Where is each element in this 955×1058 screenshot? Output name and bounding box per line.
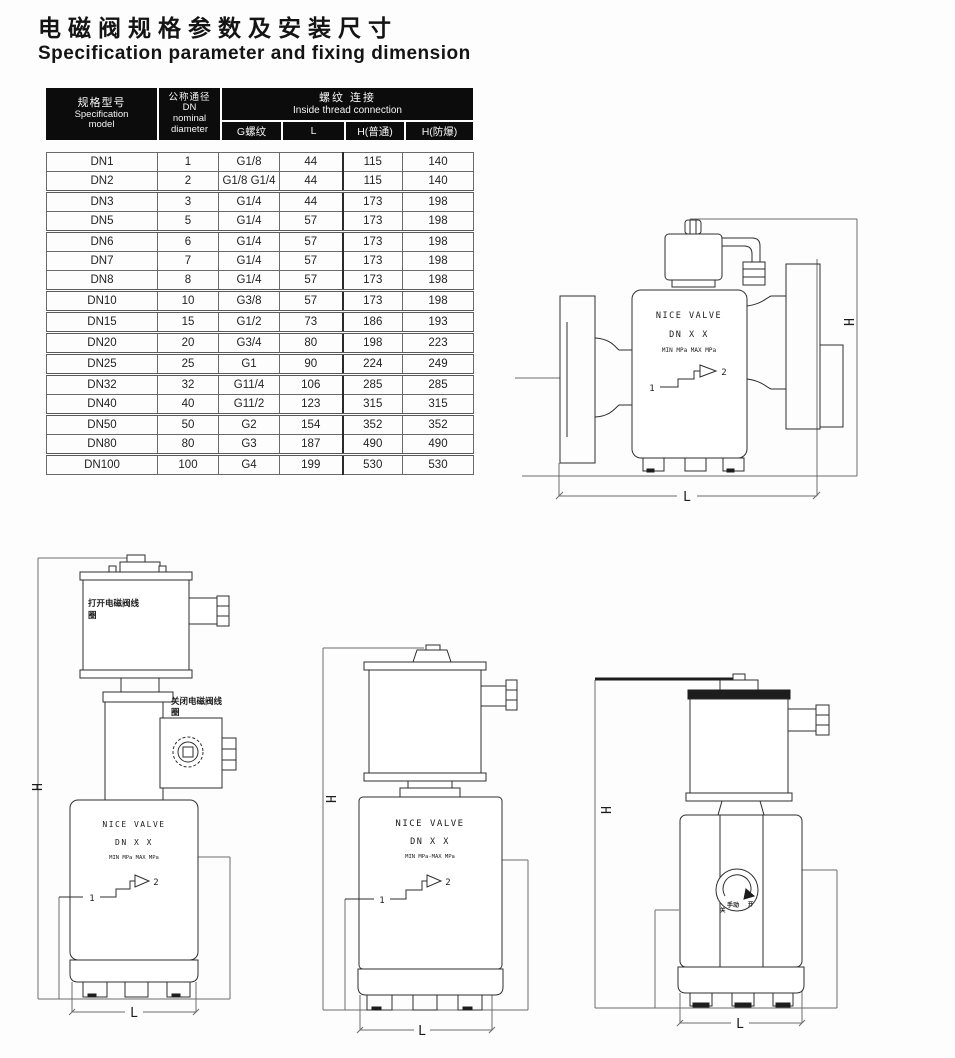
table-row: DN50 50 G2 154 352 352 (47, 415, 474, 435)
table-row: DN5 5 G1/4 57 173 198 (47, 212, 474, 232)
cell-g-thread: G3/4 (219, 333, 280, 354)
cell-h-standard: 115 (343, 153, 403, 172)
header-group-en: Inside thread connection (293, 105, 402, 117)
cell-l: 123 (280, 395, 343, 415)
valve-dn-text: DN X X (410, 837, 450, 847)
dim-h-label: H (322, 795, 337, 803)
cell-l: 44 (280, 153, 343, 172)
cell-h-explosionproof: 490 (403, 435, 474, 455)
cell-model: DN3 (47, 192, 158, 212)
page-title-cn: 电磁阀规格参数及安装尺寸 (38, 16, 471, 41)
manual-close-label: 关 (720, 906, 726, 914)
cell-h-explosionproof: 223 (403, 333, 474, 354)
cell-h-standard: 352 (343, 415, 403, 435)
cell-model: DN6 (47, 232, 158, 252)
cell-g-thread: G3/8 (219, 291, 280, 312)
table-row: DN40 40 G11/2 123 315 315 (47, 395, 474, 415)
cell-l: 90 (280, 354, 343, 375)
cell-dn: 32 (158, 375, 219, 395)
cell-l: 199 (280, 455, 343, 475)
cell-h-standard: 115 (343, 172, 403, 192)
cell-h-standard: 490 (343, 435, 403, 455)
drawing-manual-override-valve: H L 手动 开 关 (583, 653, 928, 1058)
spec-table: DN1 1 G1/8 44 115 140 DN2 2 G1/8 G1/4 44… (46, 152, 474, 475)
cell-g-thread: G1/4 (219, 232, 280, 252)
cell-h-explosionproof: 315 (403, 395, 474, 415)
dim-h-label: H (840, 318, 855, 326)
cell-l: 154 (280, 415, 343, 435)
cell-dn: 25 (158, 354, 219, 375)
cell-l: 73 (280, 312, 343, 333)
cell-h-standard: 530 (343, 455, 403, 475)
cell-h-explosionproof: 193 (403, 312, 474, 333)
header-group-cn: 螺纹 连接 (319, 92, 376, 105)
table-row: DN1 1 G1/8 44 115 140 (47, 153, 474, 172)
table-row: DN100 100 G4 199 530 530 (47, 455, 474, 475)
cell-l: 106 (280, 375, 343, 395)
table-row: DN32 32 G11/4 106 285 285 (47, 375, 474, 395)
cell-model: DN32 (47, 375, 158, 395)
header-g-thread: G螺纹 (222, 122, 281, 140)
cell-g-thread: G1/8 (219, 153, 280, 172)
header-sub-row: G螺纹 L H(普通) H(防爆) (222, 122, 473, 140)
cell-model: DN15 (47, 312, 158, 333)
cell-h-explosionproof: 352 (403, 415, 474, 435)
cell-h-explosionproof: 249 (403, 354, 474, 375)
valve-pressure-text: MIN MPa MAX MPa (109, 855, 159, 861)
cell-g-thread: G1/4 (219, 252, 280, 271)
valve-dn-text: DN X X (669, 330, 709, 340)
cell-h-standard: 285 (343, 375, 403, 395)
valve-pressure-text: MIN MPa-MAX MPa (405, 854, 455, 860)
cell-model: DN20 (47, 333, 158, 354)
cell-h-explosionproof: 198 (403, 271, 474, 291)
cell-l: 187 (280, 435, 343, 455)
cell-h-standard: 315 (343, 395, 403, 415)
cell-dn: 5 (158, 212, 219, 232)
table-row: DN3 3 G1/4 44 173 198 (47, 192, 474, 212)
cell-h-explosionproof: 285 (403, 375, 474, 395)
cell-dn: 15 (158, 312, 219, 333)
cell-dn: 50 (158, 415, 219, 435)
cell-l: 44 (280, 192, 343, 212)
cell-dn: 7 (158, 252, 219, 271)
port-1-label: 1 (379, 896, 384, 906)
manual-open-label: 开 (748, 900, 754, 908)
cell-model: DN8 (47, 271, 158, 291)
table-row: DN10 10 G3/8 57 173 198 (47, 291, 474, 312)
port-2-label: 2 (153, 878, 158, 888)
valve-dn-text: DN X X (115, 838, 153, 847)
drawing-flanged-valve: H L NICE VALVE DN X X MIN MPa MAX MPa 1 … (515, 192, 955, 510)
cell-dn: 6 (158, 232, 219, 252)
cell-dn: 100 (158, 455, 219, 475)
cell-g-thread: G1/4 (219, 212, 280, 232)
cell-g-thread: G1/4 (219, 192, 280, 212)
cell-g-thread: G1 (219, 354, 280, 375)
cell-h-standard: 173 (343, 291, 403, 312)
table-row: DN6 6 G1/4 57 173 198 (47, 232, 474, 252)
cell-model: DN100 (47, 455, 158, 475)
table-row: DN20 20 G3/4 80 198 223 (47, 333, 474, 354)
open-coil-label-line2: 圈 (88, 610, 97, 620)
header-h-explosionproof: H(防爆) (406, 122, 473, 140)
cell-g-thread: G3 (219, 435, 280, 455)
cell-dn: 8 (158, 271, 219, 291)
table-row: DN2 2 G1/8 G1/4 44 115 140 (47, 172, 474, 192)
cell-h-explosionproof: 198 (403, 192, 474, 212)
cell-h-explosionproof: 198 (403, 252, 474, 271)
cell-g-thread: G11/4 (219, 375, 280, 395)
table-row: DN80 80 G3 187 490 490 (47, 435, 474, 455)
valve-name-text: NICE VALVE (102, 820, 165, 829)
dim-h-label: H (597, 806, 612, 814)
cell-g-thread: G1/4 (219, 271, 280, 291)
cell-model: DN25 (47, 354, 158, 375)
cell-g-thread: G4 (219, 455, 280, 475)
dim-l-label: L (736, 1017, 744, 1032)
dim-l-label: L (418, 1024, 426, 1039)
cell-model: DN5 (47, 212, 158, 232)
header-nominal-diameter: 公称通径 DN nominal diameter (159, 88, 220, 140)
cell-model: DN7 (47, 252, 158, 271)
cell-h-explosionproof: 198 (403, 212, 474, 232)
spec-sheet-page: 电磁阀规格参数及安装尺寸 Specification parameter and… (0, 0, 955, 1058)
port-2-label: 2 (721, 368, 726, 378)
header-col1-en2: model (89, 120, 115, 131)
dim-l-label: L (130, 1006, 138, 1021)
cell-dn: 40 (158, 395, 219, 415)
cell-h-explosionproof: 198 (403, 232, 474, 252)
cell-dn: 2 (158, 172, 219, 192)
cell-model: DN80 (47, 435, 158, 455)
cell-h-standard: 173 (343, 212, 403, 232)
cell-h-standard: 173 (343, 192, 403, 212)
cell-model: DN40 (47, 395, 158, 415)
cell-g-thread: G11/2 (219, 395, 280, 415)
close-coil-label-line2: 圈 (171, 707, 180, 717)
cell-dn: 1 (158, 153, 219, 172)
cell-l: 57 (280, 291, 343, 312)
cell-l: 57 (280, 212, 343, 232)
table-row: DN8 8 G1/4 57 173 198 (47, 271, 474, 291)
cell-h-standard: 173 (343, 252, 403, 271)
cell-g-thread: G2 (219, 415, 280, 435)
cell-model: DN2 (47, 172, 158, 192)
cell-h-explosionproof: 140 (403, 153, 474, 172)
dim-l-label: L (683, 490, 691, 505)
cell-dn: 10 (158, 291, 219, 312)
drawing-standard-valve: H L NICE VALVE DN X X MIN MPa-MAX MPa 1 … (318, 642, 558, 1058)
valve-name-text: NICE VALVE (656, 311, 722, 321)
cell-h-explosionproof: 198 (403, 291, 474, 312)
cell-dn: 3 (158, 192, 219, 212)
header-thread-connection-group: 螺纹 连接 Inside thread connection G螺纹 L H(普… (222, 88, 473, 140)
cell-h-standard: 173 (343, 271, 403, 291)
cell-h-standard: 173 (343, 232, 403, 252)
manual-dial-label: 手动 (727, 901, 739, 909)
valve-name-text: NICE VALVE (395, 819, 464, 829)
cell-model: DN50 (47, 415, 158, 435)
title-block: 电磁阀规格参数及安装尺寸 Specification parameter and… (38, 16, 471, 65)
cell-l: 57 (280, 252, 343, 271)
cell-dn: 20 (158, 333, 219, 354)
drawing-dual-coil-valve: H L 打开电磁阀线 圈 关闭电磁阀线 圈 NICE VALVE DN X X (25, 552, 315, 1022)
header-h-standard: H(普通) (346, 122, 404, 140)
cell-h-standard: 186 (343, 312, 403, 333)
header-l: L (283, 122, 344, 140)
table-row: DN7 7 G1/4 57 173 198 (47, 252, 474, 271)
cell-g-thread: G1/8 G1/4 (219, 172, 280, 192)
cell-l: 57 (280, 271, 343, 291)
cell-g-thread: G1/2 (219, 312, 280, 333)
table-row: DN15 15 G1/2 73 186 193 (47, 312, 474, 333)
table-row: DN25 25 G1 90 224 249 (47, 354, 474, 375)
cell-l: 44 (280, 172, 343, 192)
header-thread-connection: 螺纹 连接 Inside thread connection (222, 88, 473, 120)
spec-table-header: 规格型号 Specification model 公称通径 DN nominal… (46, 88, 473, 140)
cell-h-explosionproof: 530 (403, 455, 474, 475)
port-1-label: 1 (89, 894, 94, 904)
dim-h-label: H (28, 783, 43, 791)
cell-l: 80 (280, 333, 343, 354)
port-1-label: 1 (649, 384, 654, 394)
cell-h-standard: 224 (343, 354, 403, 375)
open-coil-label-line1: 打开电磁阀线 (88, 598, 140, 608)
header-specification-model: 规格型号 Specification model (46, 88, 157, 140)
cell-h-standard: 198 (343, 333, 403, 354)
header-col2-diameter: diameter (171, 125, 208, 136)
cell-l: 57 (280, 232, 343, 252)
cell-h-explosionproof: 140 (403, 172, 474, 192)
header-col1-cn: 规格型号 (78, 97, 126, 109)
cell-model: DN10 (47, 291, 158, 312)
close-coil-label-line1: 关闭电磁阀线 (171, 696, 223, 706)
cell-model: DN1 (47, 153, 158, 172)
page-title-en: Specification parameter and fixing dimen… (38, 43, 471, 65)
cell-dn: 80 (158, 435, 219, 455)
port-2-label: 2 (445, 878, 450, 888)
valve-pressure-text: MIN MPa MAX MPa (662, 347, 717, 354)
